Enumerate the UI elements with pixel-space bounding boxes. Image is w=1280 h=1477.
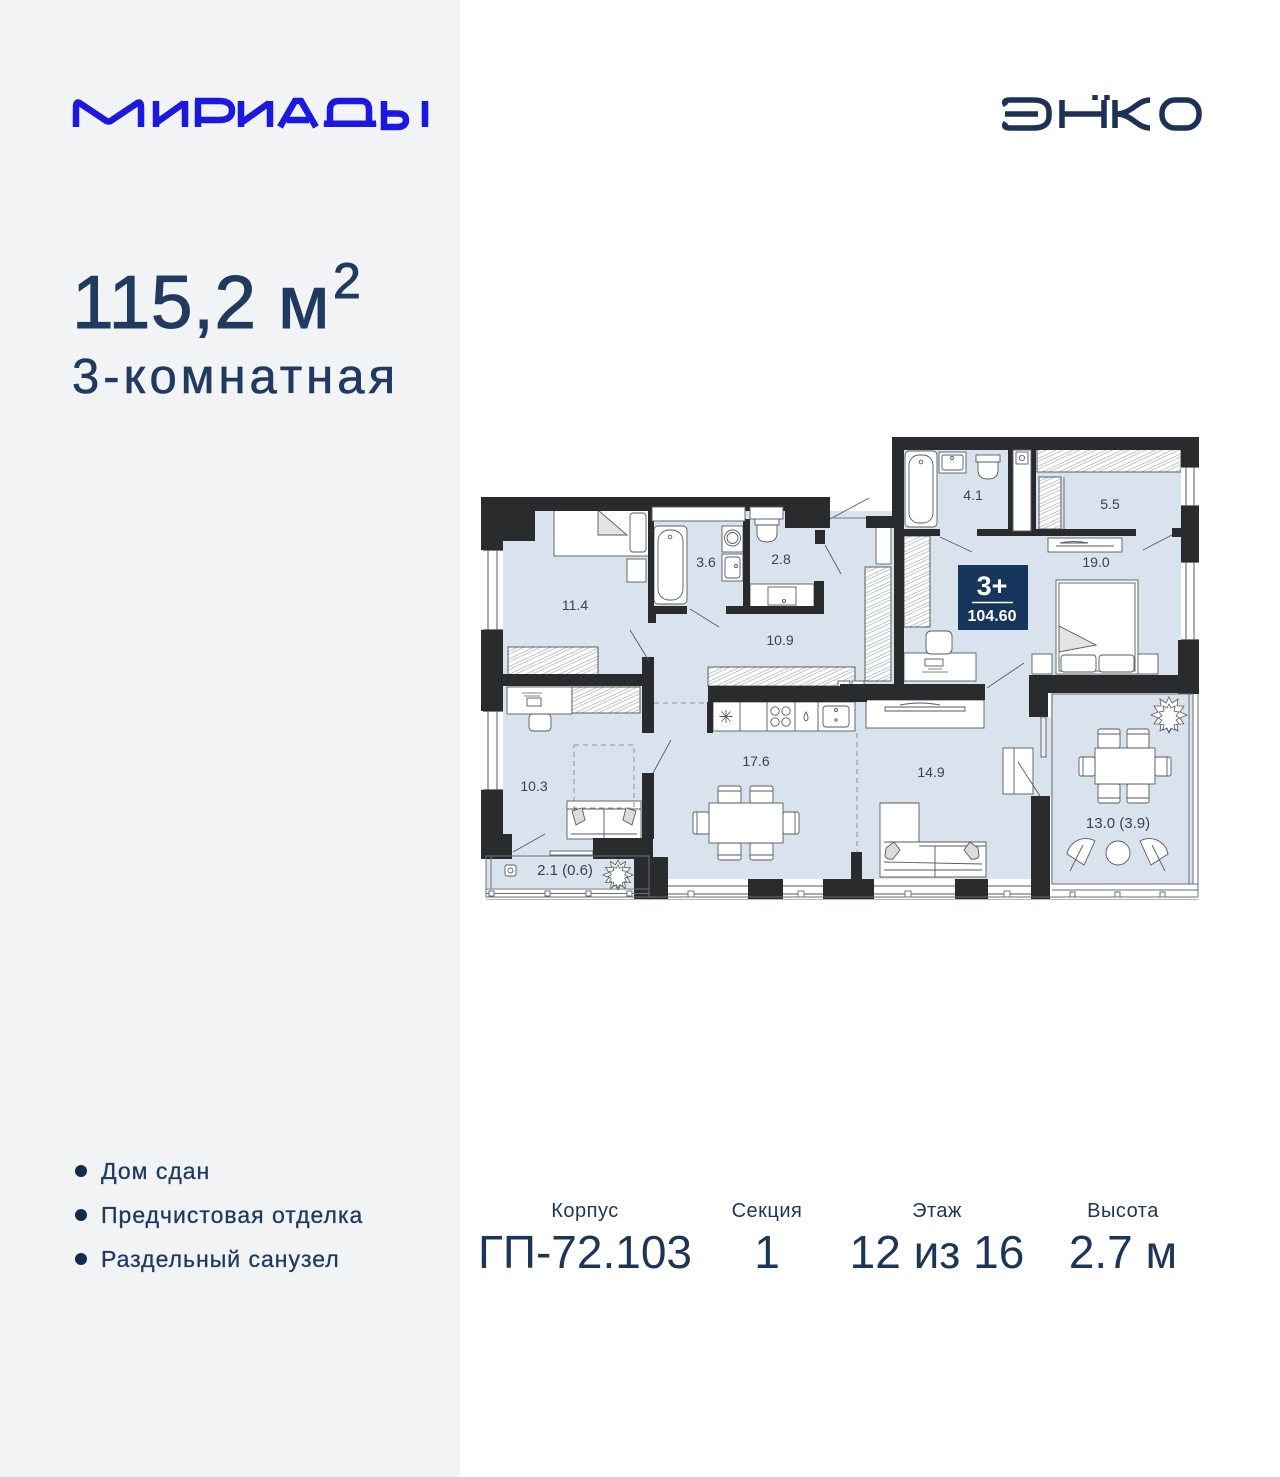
svg-text:104.60: 104.60: [968, 608, 1017, 625]
svg-text:3.6: 3.6: [696, 554, 716, 570]
svg-text:2.1 (0.6): 2.1 (0.6): [537, 862, 593, 879]
svg-text:2.8: 2.8: [771, 551, 791, 567]
svg-text:11.4: 11.4: [562, 597, 588, 613]
svg-text:19.0: 19.0: [1082, 554, 1109, 570]
svg-text:13.0 (3.9): 13.0 (3.9): [1086, 815, 1150, 832]
svg-text:14.9: 14.9: [917, 764, 944, 780]
svg-text:5.5: 5.5: [1100, 496, 1120, 512]
svg-text:17.6: 17.6: [742, 753, 769, 769]
svg-text:4.1: 4.1: [963, 487, 983, 503]
svg-text:10.9: 10.9: [766, 632, 793, 648]
svg-text:3+: 3+: [977, 571, 1008, 601]
svg-text:10.3: 10.3: [520, 778, 547, 794]
